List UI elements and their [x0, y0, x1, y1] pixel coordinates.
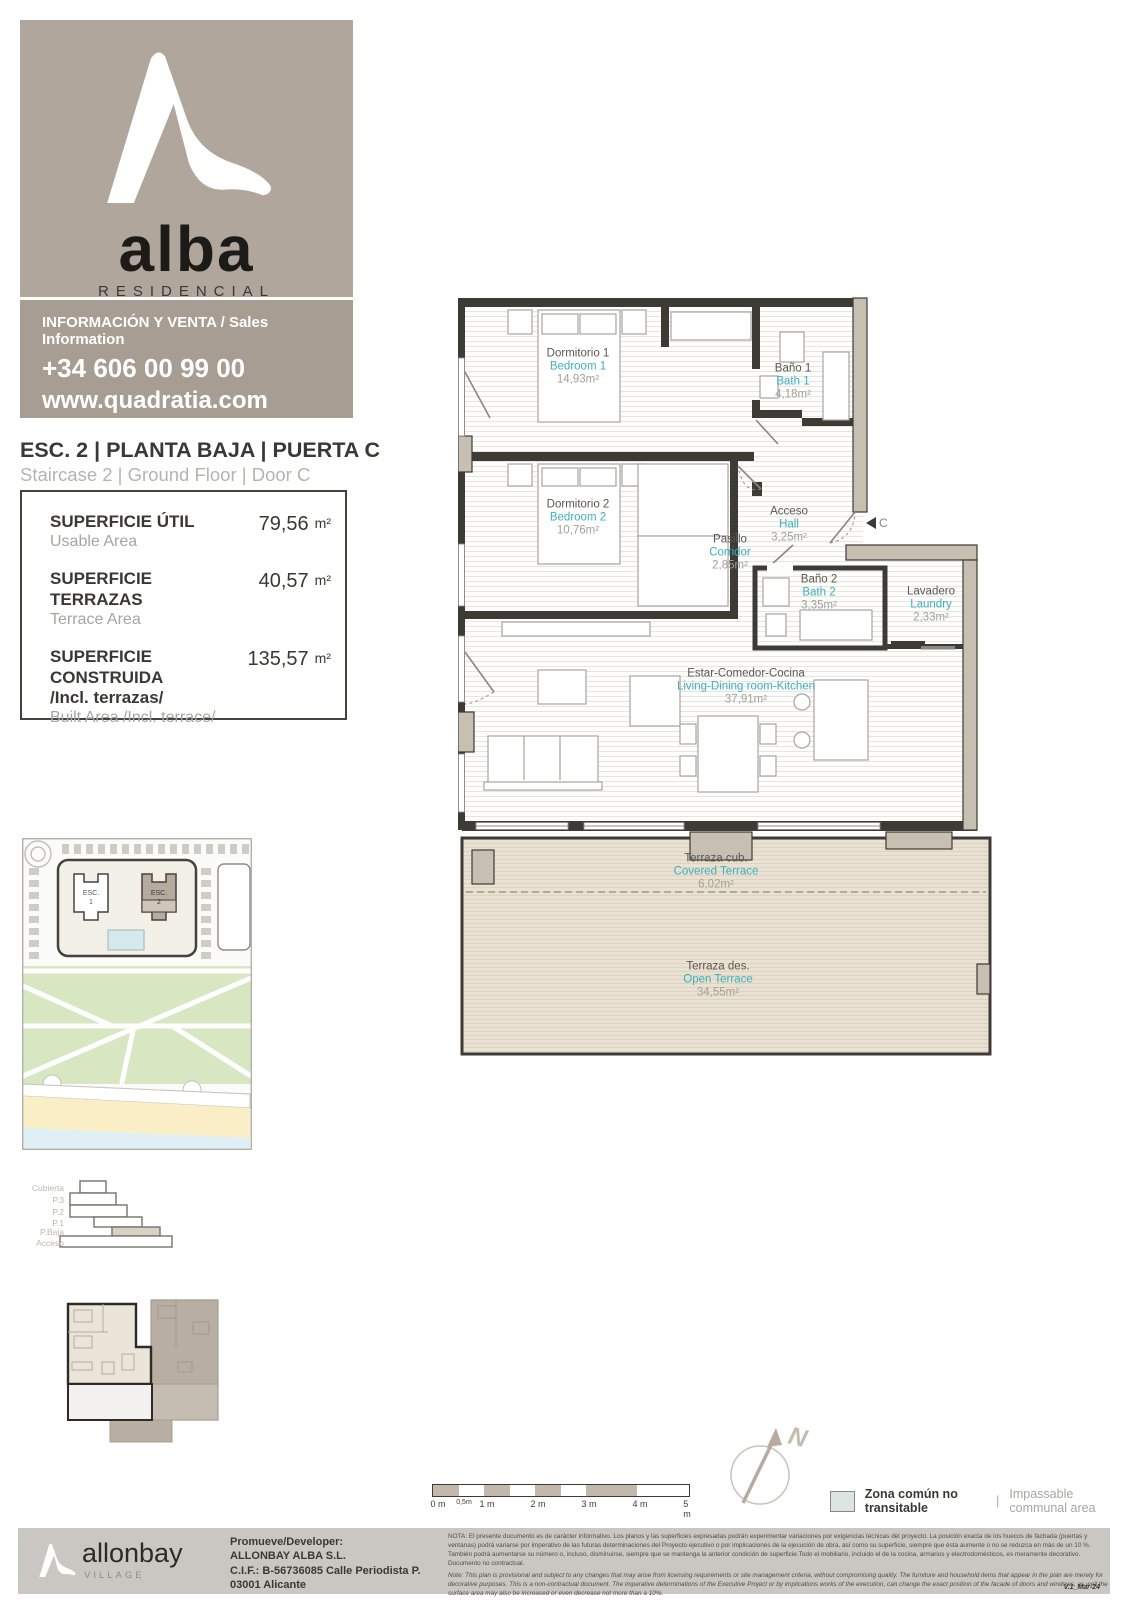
area-value: 135,57 [248, 648, 309, 671]
room-label-bath1: Baño 1Bath 14,18m² [775, 363, 811, 402]
bath2-shower [800, 610, 872, 640]
chair [760, 756, 776, 776]
area-value: 40,57 [259, 570, 309, 593]
sideboard [502, 622, 650, 636]
chair [760, 724, 776, 744]
area-label-2: /Incl. terrazas/ [50, 688, 233, 708]
adjacent-plot [218, 864, 250, 950]
sales-info-box: INFORMACIÓN Y VENTA / Sales Information … [20, 300, 353, 418]
allonbay-logo-name: allonbay [82, 1538, 183, 1569]
area-unit: m² [315, 648, 331, 666]
door-c-marker: C [866, 516, 888, 530]
north-compass: N [703, 1415, 818, 1525]
brochure-page: alba RESIDENCIAL INFORMACIÓN Y VENTA / S… [0, 0, 1126, 1600]
armchair [630, 676, 680, 726]
area-unit: m² [315, 570, 331, 588]
table-row: SUPERFICIE ÚTIL Usable Area 79,56 m² [50, 512, 331, 552]
door-direction-icon [866, 517, 876, 529]
residential-plot: ESC. 1 ESC. 2 [58, 860, 196, 956]
table-row: SUPERFICIE TERRAZAS Terrace Area 40,57 m… [50, 569, 331, 630]
dining-table [698, 716, 758, 792]
svg-text:ESC.: ESC. [83, 890, 99, 897]
area-sublabel: Usable Area [50, 532, 233, 552]
room-label-bath2: Baño 2Bath 23,35m² [801, 574, 837, 613]
area-sublabel: Built Area /Incl. terrace/ [50, 708, 233, 728]
developer-info: Promueve/Developer: ALLONBAY ALBA S.L. C… [230, 1535, 421, 1592]
map-legend: Zona común no transitable | Impassable c… [830, 1487, 1126, 1515]
key-plan-drawing [58, 1292, 228, 1447]
section-drawing: Cubierta P.3 P.2 P.1 P.Baja Acceso [20, 1165, 210, 1265]
sales-phone: +34 606 00 99 00 [42, 353, 353, 384]
brand-name: alba [20, 217, 353, 281]
scale-bar: 0 m 0,5m 1 m 2 m 3 m 4 m 5 m [432, 1484, 690, 1512]
bath1-sink [780, 332, 804, 362]
key-plan [58, 1292, 228, 1452]
sofa [488, 736, 598, 788]
stool [794, 732, 810, 748]
bath1-tub [823, 352, 849, 420]
building-section-diagram: Cubierta P.3 P.2 P.1 P.Baja Acceso [20, 1165, 210, 1270]
compass-icon: N [703, 1415, 818, 1520]
kitchen-island [814, 680, 868, 760]
area-sublabel: Terrace Area [50, 610, 233, 630]
wardrobe-1 [671, 312, 751, 340]
unit-subtitle: Staircase 2 | Ground Floor | Door C [20, 464, 310, 486]
sales-website: www.quadratia.com [42, 387, 353, 415]
legend-swatch [830, 1491, 855, 1512]
allonbay-logo-sub: VILLAGE [84, 1570, 145, 1581]
room-label-open-terrace: Terraza des.Open Terrace34,55m² [683, 961, 752, 1000]
floor-plan: Dormitorio 1Bedroom 114,93m² Baño 1Bath … [458, 292, 998, 1064]
chair [680, 724, 696, 744]
room-label-bedroom2: Dormitorio 2Bedroom 210,76m² [547, 499, 610, 538]
room-label-laundry: LavaderoLaundry2,33m² [907, 586, 955, 625]
room-label-bedroom1: Dormitorio 1Bedroom 114,93m² [547, 348, 610, 387]
chair [680, 756, 696, 776]
section-level-highlight [112, 1227, 160, 1236]
nightstand [622, 310, 646, 334]
pool [108, 930, 144, 950]
room-label-hall: AccesoHall3,25m² [770, 506, 808, 545]
park [23, 966, 251, 1084]
alba-logo-icon [92, 42, 282, 210]
site-map: ESC. 1 ESC. 2 [22, 838, 252, 1155]
scale-bar-segments [432, 1484, 690, 1497]
room-label-covered-terrace: Terraza cub.Covered Terrace6,02m² [674, 853, 759, 892]
legal-note-en: Note: This plan is provisional and subje… [448, 1572, 1108, 1599]
room-label-living: Estar-Comedor-CocinaLiving-Dining room-K… [677, 668, 815, 707]
svg-text:P.3: P.3 [52, 1195, 64, 1205]
svg-text:P.Baja: P.Baja [40, 1227, 64, 1237]
this-unit [68, 1304, 152, 1420]
svg-text:ESC.: ESC. [151, 890, 167, 897]
svg-text:N: N [786, 1422, 811, 1454]
nightstand [508, 310, 532, 334]
table-row: SUPERFICIE CONSTRUIDA /Incl. terrazas/ B… [50, 647, 331, 728]
legal-note: NOTA: El presente documento es de caráct… [448, 1533, 1108, 1599]
area-summary-table: SUPERFICIE ÚTIL Usable Area 79,56 m² SUP… [20, 490, 347, 720]
area-unit: m² [315, 513, 331, 531]
allonbay-logo-icon [36, 1536, 78, 1584]
svg-text:1: 1 [89, 899, 93, 906]
svg-text:Acceso: Acceso [36, 1238, 64, 1248]
footer: allonbay VILLAGE Promueve/Developer: ALL… [18, 1528, 1110, 1594]
wardrobe-2 [638, 464, 728, 536]
area-value: 79,56 [259, 513, 309, 536]
sales-info-label: INFORMACIÓN Y VENTA / Sales Information [42, 314, 353, 348]
coffee-table [538, 670, 586, 704]
site-map-drawing: ESC. 1 ESC. 2 [22, 838, 252, 1150]
area-label: SUPERFICIE TERRAZAS [50, 569, 233, 610]
svg-text:2: 2 [157, 899, 161, 906]
area-label: SUPERFICIE CONSTRUIDA [50, 647, 233, 688]
svg-text:P.2: P.2 [52, 1207, 64, 1217]
area-label: SUPERFICIE ÚTIL [50, 512, 233, 532]
brand-logo-box: alba RESIDENCIAL [20, 20, 353, 297]
unit-title: ESC. 2 | PLANTA BAJA | PUERTA C [20, 438, 380, 463]
bath2-toilet [766, 614, 786, 636]
plan-version: V.1_Mar-24 [1064, 1584, 1100, 1591]
room-label-corridor: PasilloCorridor2,85m² [709, 534, 751, 573]
brand-subtitle: RESIDENCIAL [20, 283, 353, 300]
legal-note-es: NOTA: El presente documento es de caráct… [448, 1533, 1108, 1569]
nightstand [508, 464, 532, 486]
svg-text:Cubierta: Cubierta [32, 1183, 64, 1193]
bath2-sink [763, 578, 789, 606]
